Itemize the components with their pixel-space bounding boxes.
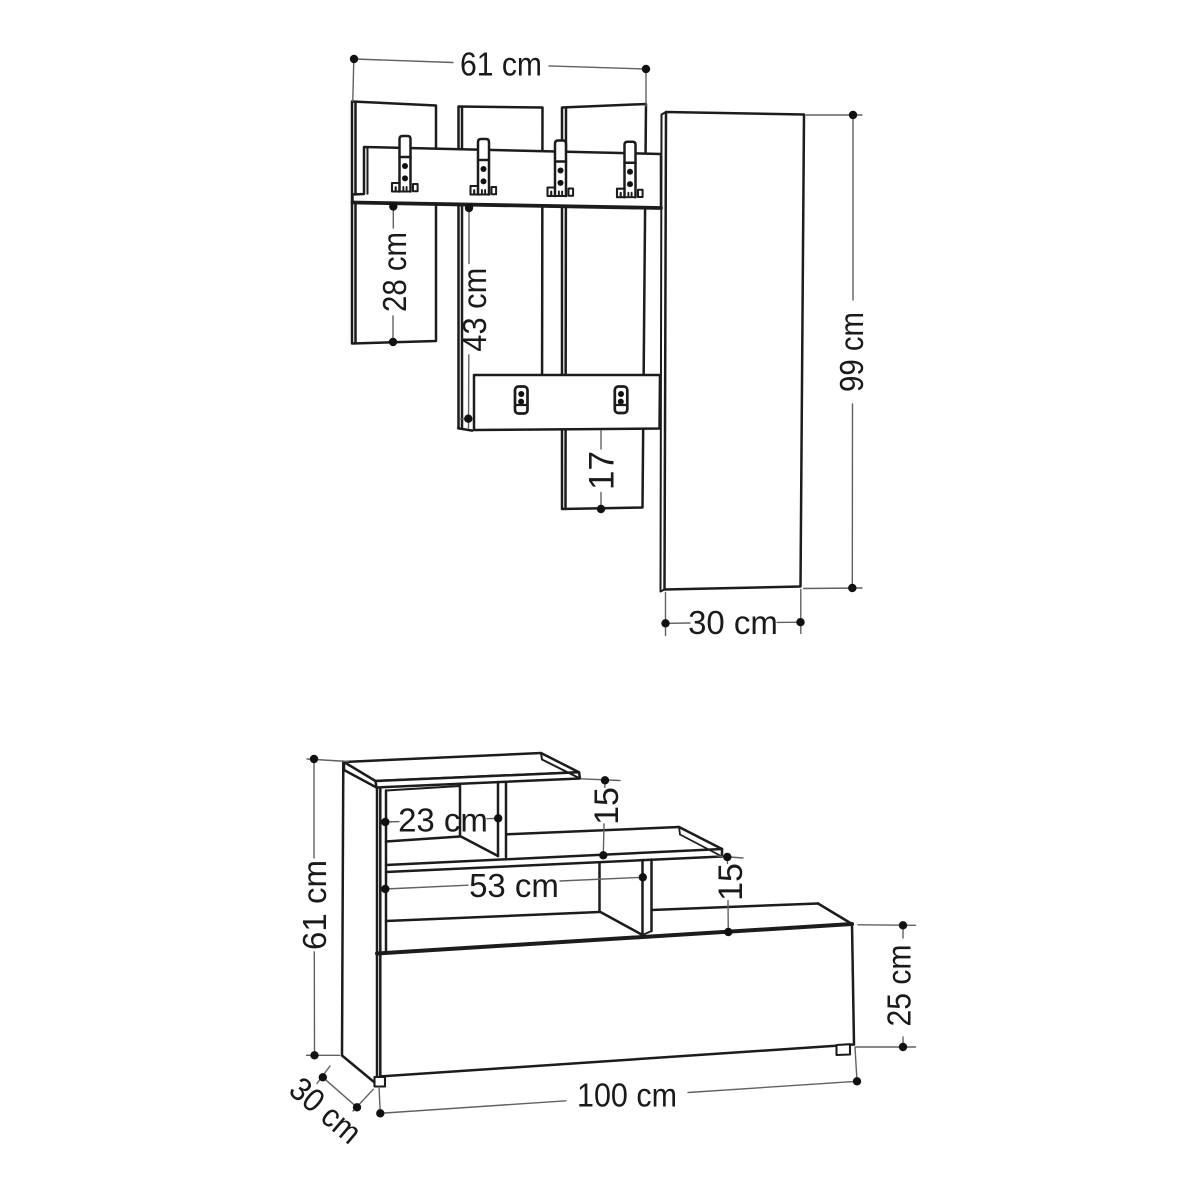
svg-text:30 cm: 30 cm — [688, 604, 778, 641]
svg-text:17: 17 — [583, 451, 622, 490]
svg-text:61 cm: 61 cm — [460, 46, 542, 83]
svg-text:15: 15 — [712, 863, 750, 901]
svg-text:100 cm: 100 cm — [577, 1077, 677, 1114]
svg-text:23 cm: 23 cm — [398, 802, 488, 839]
svg-text:99 cm: 99 cm — [833, 312, 870, 392]
svg-text:25 cm: 25 cm — [881, 945, 918, 1027]
svg-text:28 cm: 28 cm — [376, 232, 413, 312]
svg-text:53 cm: 53 cm — [469, 867, 559, 904]
svg-text:61 cm: 61 cm — [296, 860, 333, 950]
svg-text:15: 15 — [588, 787, 626, 825]
svg-text:43 cm: 43 cm — [456, 268, 493, 352]
